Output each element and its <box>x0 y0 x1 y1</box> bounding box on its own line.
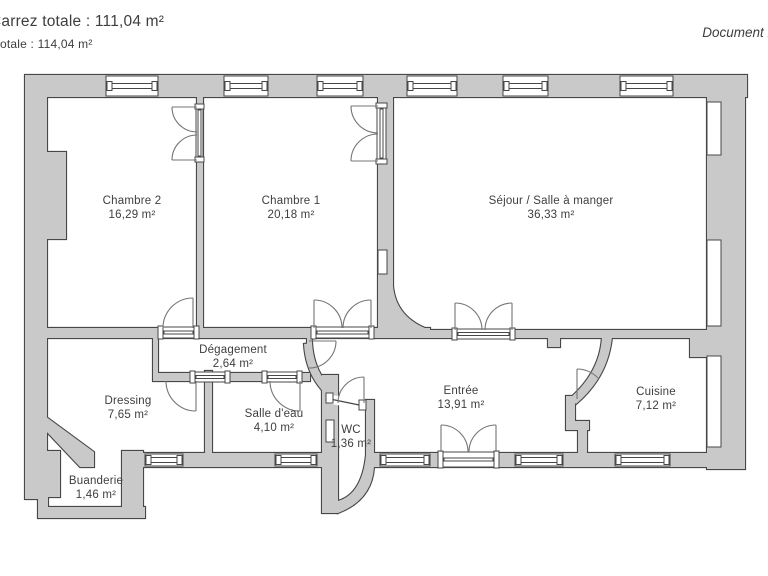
window-jamb-icon <box>311 456 316 465</box>
door-swing-arc <box>314 300 342 328</box>
room-label-salle-eau: Salle d'eau 4,10 m² <box>245 407 304 435</box>
threshold-bar <box>198 110 201 156</box>
window-glazing <box>625 84 668 89</box>
threshold-end-icon <box>326 393 333 403</box>
room-label-degagement: Dégagement 2,64 m² <box>199 343 267 371</box>
room-label-dressing: Dressing 7,65 m² <box>105 394 152 422</box>
window-glazing <box>111 84 153 89</box>
window-jamb-icon <box>664 456 669 465</box>
threshold-bar <box>444 458 493 461</box>
threshold-end-icon <box>494 451 499 468</box>
room-label-entree: Entrée 13,91 m² <box>438 384 485 412</box>
door-swing-arc <box>441 425 468 452</box>
window-jamb-icon <box>146 456 151 465</box>
window-jamb-icon <box>357 82 362 91</box>
window-jamb-icon <box>542 82 547 91</box>
threshold-end-icon <box>359 400 366 410</box>
threshold-bar <box>268 376 296 379</box>
window-jamb-icon <box>152 82 157 91</box>
room-label-sejour: Séjour / Salle à manger 36,33 m² <box>489 194 614 222</box>
threshold-end-icon <box>225 371 230 383</box>
room-label-chambre-2: Chambre 2 16,29 m² <box>103 194 162 222</box>
window-jamb-icon <box>667 82 672 91</box>
window-glazing <box>229 84 263 89</box>
window-jamb-icon <box>504 82 509 91</box>
room-label-cuisine: Cuisine 7,12 m² <box>636 385 676 413</box>
window-jamb-icon <box>318 82 323 91</box>
room-label-chambre-1: Chambre 1 20,18 m² <box>262 194 321 222</box>
wall-recess <box>378 250 387 274</box>
threshold-end-icon <box>158 326 163 339</box>
window-glazing <box>412 84 452 89</box>
threshold-bar <box>196 376 224 379</box>
wall-recess <box>707 102 721 155</box>
door-swing-arc <box>455 303 482 330</box>
floorplan-page: Carrez totale : 111,04 m² otale : 114,04… <box>0 0 768 576</box>
door-swing-arc <box>166 381 196 411</box>
room-label-buanderie: Buanderie 1,46 m² <box>69 474 123 502</box>
window-jamb-icon <box>107 82 112 91</box>
door-swing-arc <box>351 106 378 133</box>
window-glazing <box>520 458 558 463</box>
window-glazing <box>280 458 312 463</box>
threshold-end-icon <box>262 371 267 383</box>
window-jamb-icon <box>225 82 230 91</box>
window-jamb-icon <box>516 456 521 465</box>
window-jamb-icon <box>557 456 562 465</box>
threshold-end-icon <box>190 371 195 383</box>
wall-recess <box>707 356 721 447</box>
window-jamb-icon <box>262 82 267 91</box>
window-jamb-icon <box>408 82 413 91</box>
wall-recess <box>707 240 721 326</box>
door-swing-arc <box>172 135 197 160</box>
door-swing-arc <box>485 303 512 330</box>
window-jamb-icon <box>424 456 429 465</box>
door-swing-arc <box>163 298 193 328</box>
door-swing-arc <box>351 134 378 161</box>
window-glazing <box>322 84 358 89</box>
window-jamb-icon <box>177 456 182 465</box>
window-glazing <box>150 458 178 463</box>
door-swing-arc <box>343 300 371 328</box>
window-jamb-icon <box>616 456 621 465</box>
door-swing-arc <box>469 425 496 452</box>
door-swing-arc <box>172 107 197 132</box>
threshold-end-icon <box>194 326 199 339</box>
window-glazing <box>620 458 665 463</box>
threshold-bar <box>164 331 193 334</box>
window-jamb-icon <box>381 456 386 465</box>
window-jamb-icon <box>621 82 626 91</box>
threshold-bar <box>317 331 368 334</box>
window-jamb-icon <box>451 82 456 91</box>
window-glazing <box>385 458 425 463</box>
window-jamb-icon <box>276 456 281 465</box>
window-glazing <box>508 84 543 89</box>
threshold-end-icon <box>438 451 443 468</box>
room-label-wc: WC 1,36 m² <box>330 423 372 451</box>
threshold-bar <box>458 333 509 336</box>
threshold-bar <box>380 109 383 158</box>
